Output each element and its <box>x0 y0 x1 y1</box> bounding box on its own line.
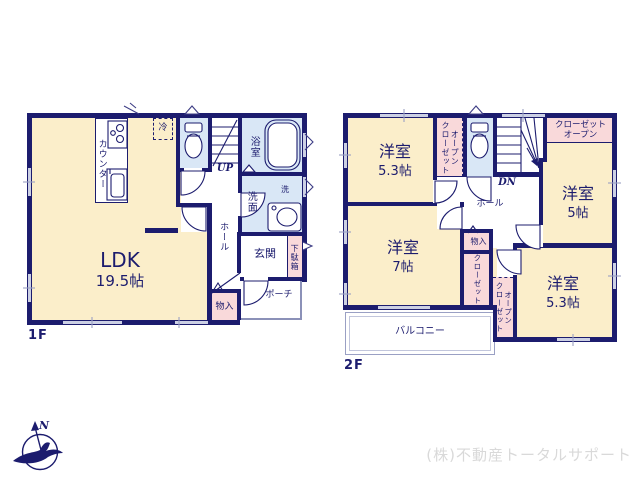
window <box>502 113 545 118</box>
wall <box>202 168 212 172</box>
label-open-closet-nw: オープン クローゼット <box>437 120 463 176</box>
room-toilet-2f <box>467 118 493 177</box>
window <box>380 113 428 118</box>
wall <box>612 113 617 342</box>
floor1-label: 1F <box>28 328 48 343</box>
label-bedroom-e-size: 5帖 <box>536 206 620 222</box>
label-bedroom-nw: 洋室 <box>350 142 440 162</box>
window <box>343 283 348 305</box>
label-closet-ne: クローゼット オープン <box>549 119 612 142</box>
company-watermark: (株)不動産トータルサポート <box>370 444 632 464</box>
room-toilet-1f <box>180 118 208 172</box>
wall <box>237 232 302 236</box>
window <box>302 177 307 197</box>
wall <box>513 243 612 248</box>
label-ldk-size: 19.5帖 <box>60 273 180 291</box>
label-balcony: バルコニー <box>360 325 480 338</box>
label-storage-1f: 物入 <box>212 301 237 313</box>
wall <box>238 172 302 176</box>
door-opening <box>244 277 268 281</box>
label-stairs-up: UP <box>213 163 237 174</box>
label-bedroom-se-size: 5.3帖 <box>521 296 605 312</box>
wall <box>237 289 241 320</box>
label-hall-2f: ホール <box>468 198 512 210</box>
label-bedroom-nw-size: 5.3帖 <box>350 164 440 180</box>
label-open-closet-s: オープン クローゼット <box>493 280 513 335</box>
wall <box>27 113 307 118</box>
window <box>302 133 307 157</box>
hall-column-1f <box>212 118 238 293</box>
label-bedroom-w: 洋室 <box>358 238 448 258</box>
label-entrance: 玄関 <box>241 247 289 261</box>
wall <box>176 168 184 172</box>
window <box>343 220 348 244</box>
vestibule-1f <box>181 172 207 232</box>
compass-north-label: N <box>36 419 52 433</box>
door-opening <box>433 180 437 203</box>
window <box>557 337 590 342</box>
label-stairs-down: DN <box>496 177 518 188</box>
label-shoe-cabinet: 下駄箱 <box>288 240 301 274</box>
door-opening <box>539 225 543 247</box>
window <box>343 143 348 168</box>
window <box>27 274 32 302</box>
floor2-label: 2F <box>344 358 364 373</box>
door-opening <box>184 168 202 172</box>
wall <box>207 289 241 293</box>
label-bedroom-e: 洋室 <box>536 184 620 204</box>
hall-2f-corridor <box>497 248 513 277</box>
label-bedroom-se: 洋室 <box>521 274 605 294</box>
wall <box>493 118 497 177</box>
label-ldk: LDK <box>60 248 180 272</box>
label-porch: ポーチ <box>260 290 298 301</box>
wall <box>176 118 180 206</box>
wall <box>348 202 437 206</box>
door-opening <box>513 252 517 275</box>
window <box>27 168 32 196</box>
label-fridge: 冷 <box>155 122 171 135</box>
floor-plan-image: LDK 19.5帖 カウンター 冷 UP 浴室 洗 洗面 ホール 玄関 下駄箱 … <box>0 0 640 480</box>
stairwell-2f <box>497 118 543 172</box>
wall <box>145 228 178 233</box>
label-bedroom-w-size: 7帖 <box>358 260 448 276</box>
label-closet-center: クローゼット <box>467 255 486 304</box>
door-opening <box>238 193 242 216</box>
door-opening <box>460 207 464 229</box>
label-counter: カウンター <box>95 138 108 190</box>
wall <box>27 320 240 325</box>
label-bath: 浴室 <box>247 130 260 164</box>
label-hall-1f: ホール <box>217 215 229 259</box>
wall <box>493 337 617 342</box>
label-laundry: 洗 <box>277 183 293 196</box>
label-washroom: 洗面 <box>244 184 257 220</box>
wall <box>543 118 547 162</box>
wall <box>238 118 242 176</box>
window <box>612 263 617 289</box>
label-storage-2f: 物入 <box>464 236 493 247</box>
wall <box>208 118 212 172</box>
window <box>63 320 122 325</box>
wall <box>463 118 467 177</box>
window <box>378 305 430 310</box>
window <box>175 320 208 325</box>
